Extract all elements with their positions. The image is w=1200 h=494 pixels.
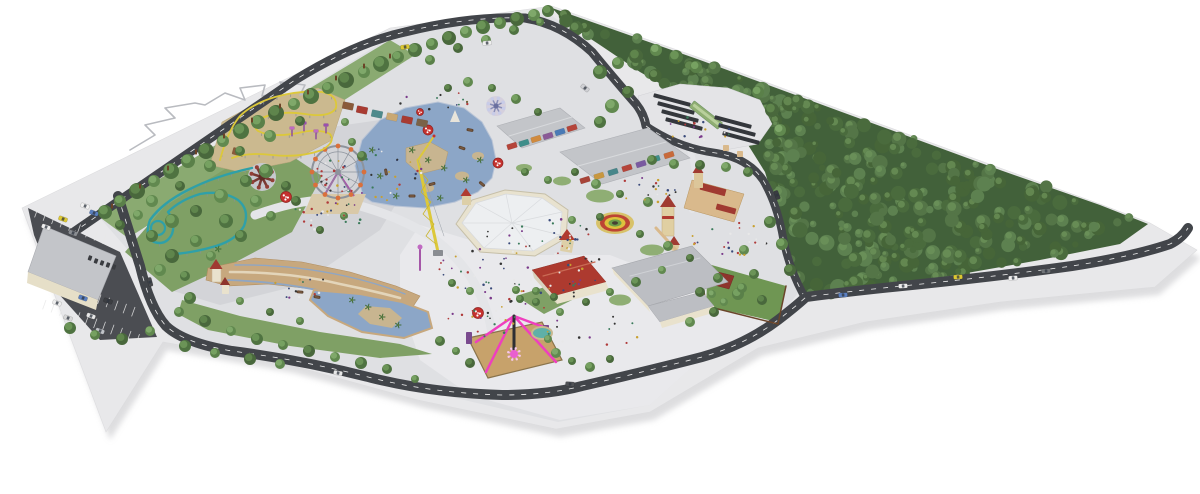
site-plan-svg <box>0 0 1200 494</box>
kiosk-south <box>473 308 484 319</box>
star-swing-ride <box>486 96 506 116</box>
rapids-tower-base-1 <box>212 268 221 282</box>
gate-tower-north <box>694 172 703 188</box>
landmark-tower-base <box>662 206 674 236</box>
crane-tower-base <box>433 250 443 256</box>
park-render-canvas <box>0 0 1200 494</box>
kiosk-northwest <box>281 192 292 203</box>
landmark-tower-band <box>662 216 674 219</box>
kiosk-plaza <box>493 158 503 168</box>
crane-tower-flag <box>433 135 436 138</box>
kiosk-lagoon <box>417 109 424 116</box>
rapids-tower-base-2 <box>222 284 229 294</box>
pendulum-tower-west <box>466 332 472 344</box>
purple-pole-ride-top <box>418 245 423 250</box>
ticket-booth-2 <box>737 151 743 157</box>
pavilion-turret-north <box>462 196 471 205</box>
ticket-booth-1 <box>723 145 729 151</box>
